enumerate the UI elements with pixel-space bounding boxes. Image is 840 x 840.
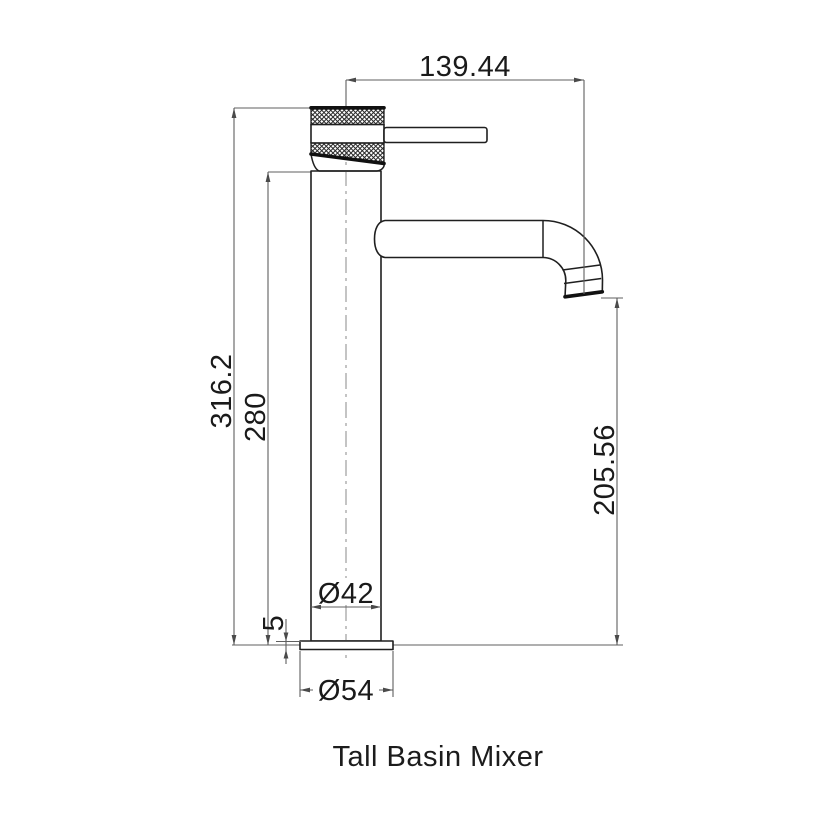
arrowhead <box>346 78 356 83</box>
dim-label-body-diameter: Ø42 <box>318 578 374 610</box>
arrowhead <box>300 688 310 693</box>
lever-handle <box>384 128 487 143</box>
arrowhead <box>232 108 237 118</box>
drawing-caption: Tall Basin Mixer <box>332 741 543 773</box>
arrowhead <box>284 633 289 642</box>
arrowhead <box>266 172 271 182</box>
technical-drawing-page: 139.44 316.2 280 205.56 Ø42 5 Ø54 Tall B… <box>0 0 840 840</box>
arrowhead <box>232 635 237 645</box>
arrowhead <box>383 688 393 693</box>
knurled-band-top <box>311 108 384 125</box>
arrowhead <box>266 635 271 645</box>
faucet-spout <box>375 221 603 298</box>
dim-label-body-height: 280 <box>240 392 272 442</box>
dimension-lines <box>232 78 623 645</box>
dim-label-overall-height: 316.2 <box>206 353 238 428</box>
arrowhead <box>284 650 289 659</box>
arrowhead <box>615 635 620 645</box>
arrowhead <box>615 298 620 308</box>
arrowhead <box>574 78 584 83</box>
dim-label-base-thickness: 5 <box>258 615 290 632</box>
dim-label-outlet-height: 205.56 <box>589 424 621 516</box>
dim-label-spout-reach: 139.44 <box>419 51 511 83</box>
dim-label-base-diameter: Ø54 <box>318 675 374 707</box>
tall-basin-mixer-drawing: 139.44 316.2 280 205.56 Ø42 5 Ø54 Tall B… <box>0 0 840 840</box>
base-plate <box>300 641 393 650</box>
handle-body-band <box>311 125 384 144</box>
